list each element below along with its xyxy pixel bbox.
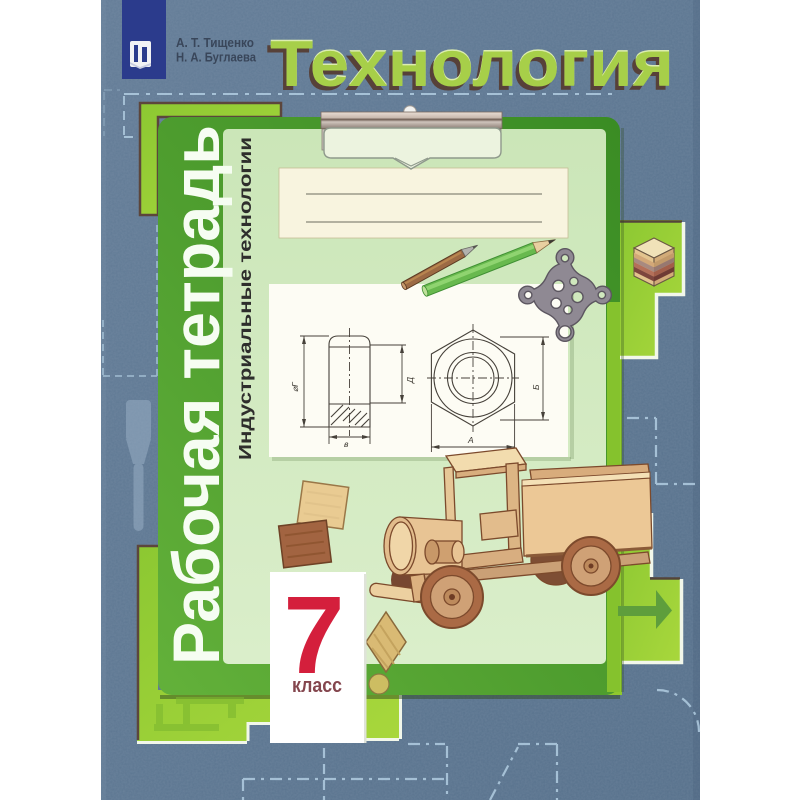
svg-text:Рабочая тетрадь: Рабочая тетрадь [159,125,233,665]
svg-text:Технология: Технология [270,27,674,100]
svg-text:А. Т. Тищенко: А. Т. Тищенко [176,35,254,50]
svg-text:Б: Б [531,384,541,390]
svg-text:Н. А. Буглаева: Н. А. Буглаева [176,50,257,65]
svg-text:класс: класс [292,675,342,697]
svg-text:Д: Д [405,377,415,384]
svg-text:Индустриальные технологии: Индустриальные технологии [235,137,255,460]
svg-text:⌀Г: ⌀Г [290,381,300,392]
svg-text:А: А [467,435,474,445]
svg-text:в: в [344,439,349,449]
